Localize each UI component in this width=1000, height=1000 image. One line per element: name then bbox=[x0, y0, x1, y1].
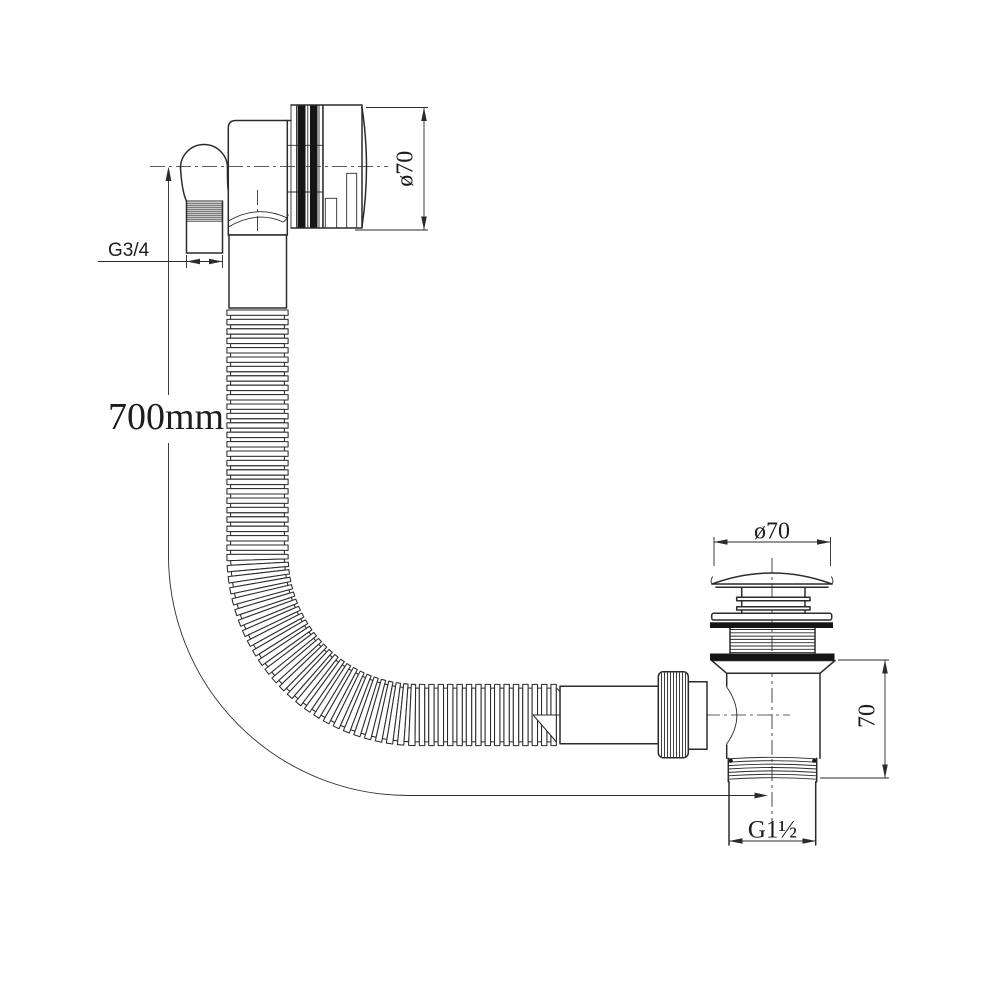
hose-rib bbox=[231, 372, 285, 376]
upper-thread-lines bbox=[730, 630, 815, 653]
overflow-seal-bar-2 bbox=[310, 106, 318, 229]
faceplate-slots bbox=[325, 173, 356, 227]
overflow-thread-label: G3/4 bbox=[108, 240, 150, 261]
hose-rib bbox=[231, 522, 285, 526]
hose-rib bbox=[434, 688, 438, 742]
hose-rib bbox=[227, 348, 288, 353]
hose-rib bbox=[231, 400, 285, 404]
hose-rib bbox=[415, 688, 419, 742]
hose-rib bbox=[227, 526, 288, 531]
hose-rib bbox=[231, 391, 285, 395]
hose-rib bbox=[231, 438, 285, 442]
hose-rib bbox=[453, 688, 457, 742]
hose-rib bbox=[231, 428, 285, 432]
waste-top-washer bbox=[712, 613, 832, 620]
hose-rib bbox=[231, 532, 285, 536]
hose-rib bbox=[231, 325, 285, 329]
thread-runout-right bbox=[812, 759, 816, 763]
dim-overflow-thread: G3/4 bbox=[98, 240, 223, 268]
hose-rib bbox=[519, 688, 523, 742]
hose-rib bbox=[231, 334, 285, 338]
hose-rib bbox=[231, 541, 285, 545]
hose-rib bbox=[509, 688, 513, 742]
hose-rib bbox=[231, 419, 285, 423]
hose-rib bbox=[227, 545, 288, 550]
overflow-thread-lines bbox=[187, 201, 223, 221]
bath-waste-overflow-drawing: 700mm G3/4 ø70 ø70 70 bbox=[0, 0, 1000, 1000]
hose-rib bbox=[448, 684, 453, 745]
hose-rib bbox=[227, 404, 288, 409]
hose-rib bbox=[472, 688, 476, 742]
waste-body-height-label: 70 bbox=[855, 704, 881, 728]
waste-assembly bbox=[710, 573, 835, 845]
hose-rib bbox=[419, 684, 424, 745]
hose-rib bbox=[227, 470, 288, 475]
hose-rib bbox=[227, 479, 288, 484]
hose-rib bbox=[466, 684, 471, 745]
hose-rib bbox=[429, 684, 434, 745]
hose-rib bbox=[513, 684, 518, 745]
hose-rib bbox=[231, 353, 285, 357]
plug-stem-upper bbox=[742, 588, 805, 598]
plug-plate-2 bbox=[742, 601, 805, 607]
hose-rib bbox=[231, 381, 285, 385]
overflow-assembly bbox=[181, 105, 367, 308]
hose-end-pipe bbox=[560, 686, 658, 743]
thread-runout-left bbox=[729, 759, 733, 763]
overflow-seal-bar-1 bbox=[298, 106, 306, 229]
hose-rib bbox=[231, 447, 285, 451]
hose-rib bbox=[491, 688, 495, 742]
hose-rib bbox=[485, 684, 490, 745]
hose-rib bbox=[227, 376, 288, 381]
hose-rib bbox=[476, 684, 481, 745]
hose-rib bbox=[438, 684, 443, 745]
hose-rib bbox=[462, 688, 466, 742]
hose-rib bbox=[425, 688, 429, 742]
hose-rib bbox=[227, 517, 288, 522]
overflow-body-left bbox=[228, 121, 291, 236]
hose-rib bbox=[227, 451, 288, 456]
hose-rib bbox=[227, 536, 288, 541]
outlet-thread-lines bbox=[728, 757, 816, 779]
lower-gasket bbox=[710, 654, 835, 661]
hose-rib bbox=[231, 494, 285, 498]
hose-rib bbox=[227, 338, 288, 343]
hose-rib bbox=[227, 329, 288, 334]
hose-rib bbox=[457, 684, 462, 745]
hose-rib bbox=[481, 688, 485, 742]
hose-rib bbox=[227, 432, 288, 437]
waste-outlet-thread-label: G1½ bbox=[748, 817, 797, 844]
hose-rib bbox=[231, 456, 285, 460]
hose-rib bbox=[227, 366, 288, 371]
hose-rib bbox=[231, 315, 285, 319]
hose-rib bbox=[523, 684, 528, 745]
hose-rib bbox=[495, 684, 500, 745]
hose-connection bbox=[560, 672, 707, 758]
plug-plate-1 bbox=[737, 597, 810, 600]
tee-inlet-adapter bbox=[688, 682, 707, 750]
overflow-elbow-dome bbox=[181, 144, 228, 168]
hose-rib bbox=[227, 442, 288, 447]
hose-rib bbox=[528, 688, 532, 742]
hose-rib bbox=[500, 688, 504, 742]
hose-rib bbox=[231, 362, 285, 366]
dim-waste-outlet-thread: G1½ bbox=[729, 817, 816, 844]
upper-gasket bbox=[710, 622, 833, 628]
hose-rib bbox=[231, 550, 285, 554]
hose-rib bbox=[227, 460, 288, 465]
dim-waste-body-height: 70 bbox=[820, 660, 889, 778]
hose-rib bbox=[231, 475, 285, 479]
hose-rib bbox=[231, 503, 285, 507]
hose-rib bbox=[231, 344, 285, 348]
hose-rib bbox=[227, 385, 288, 390]
hose-rib bbox=[227, 489, 288, 494]
hose-rib bbox=[504, 684, 509, 745]
hose-rib bbox=[227, 423, 288, 428]
hose-rib bbox=[444, 688, 448, 742]
hose-rib bbox=[227, 319, 288, 324]
tee-interior-arc bbox=[727, 687, 737, 744]
hose-rib bbox=[227, 413, 288, 418]
flexible-corrugated-hose bbox=[227, 310, 587, 746]
overflow-tailpipe bbox=[229, 235, 287, 308]
hose-length-label: 700mm bbox=[108, 396, 224, 438]
hose-rib bbox=[227, 310, 288, 315]
elbow-left-side bbox=[181, 168, 187, 201]
tee-flange bbox=[712, 661, 835, 674]
hose-rib bbox=[227, 357, 288, 362]
hose-rib bbox=[231, 513, 285, 517]
hose-rib bbox=[231, 466, 285, 470]
hose-rib bbox=[227, 507, 288, 512]
technical-drawing-page: 700mm G3/4 ø70 ø70 70 bbox=[0, 0, 1000, 1000]
hose-rib bbox=[227, 498, 288, 503]
overflow-face-diameter-label: ø70 bbox=[393, 151, 419, 187]
waste-cap-diameter-label: ø70 bbox=[754, 519, 790, 545]
hose-rib bbox=[227, 395, 288, 400]
hose-rib bbox=[231, 409, 285, 413]
tee-body-walls bbox=[727, 673, 820, 758]
hose-rib bbox=[231, 485, 285, 489]
